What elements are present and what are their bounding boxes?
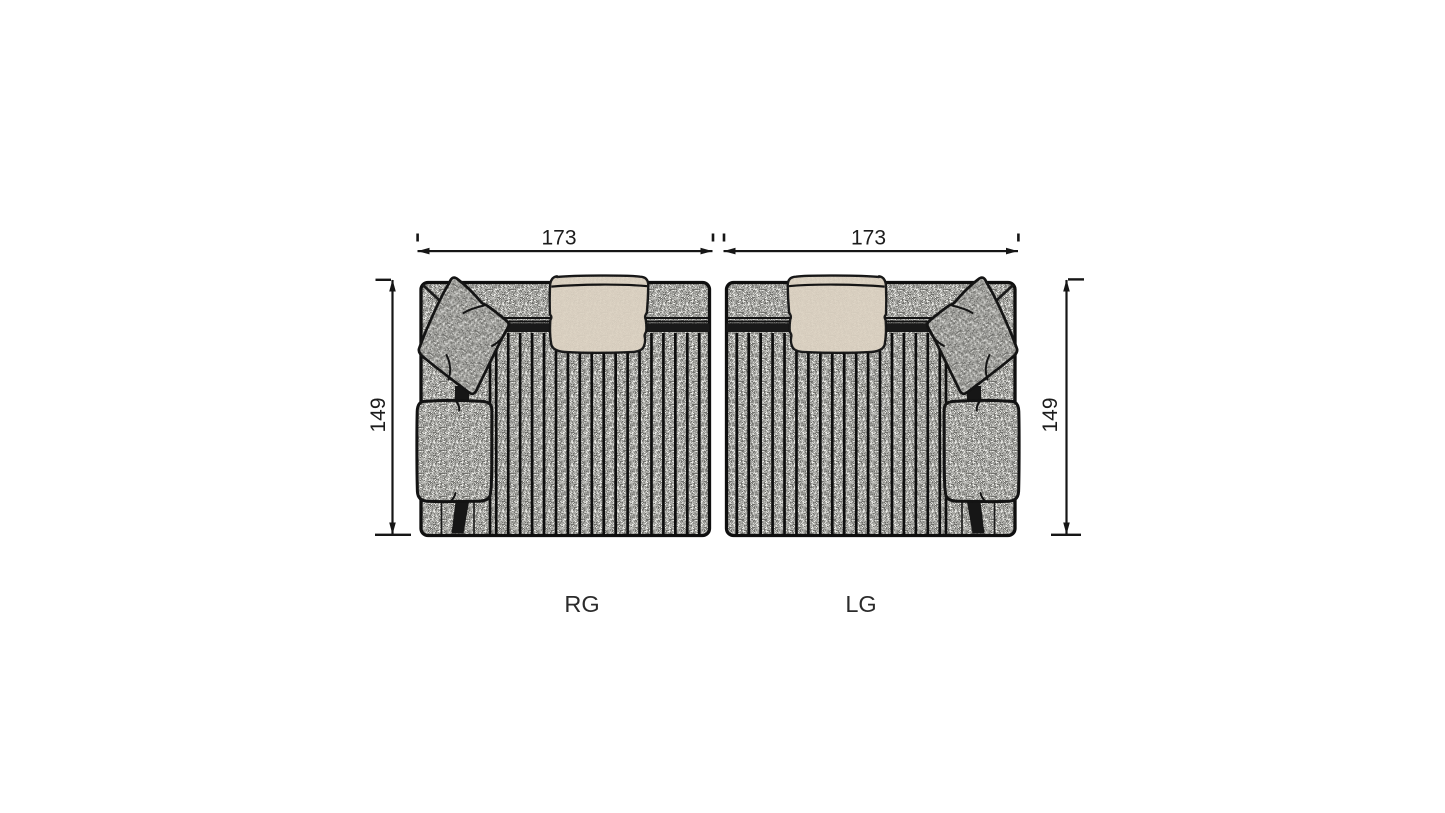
svg-text:RG: RG bbox=[564, 591, 599, 617]
svg-text:149: 149 bbox=[367, 397, 390, 432]
svg-text:173: 173 bbox=[541, 227, 576, 250]
svg-text:LG: LG bbox=[845, 591, 876, 617]
svg-text:149: 149 bbox=[1039, 397, 1062, 432]
svg-text:173: 173 bbox=[851, 227, 886, 250]
